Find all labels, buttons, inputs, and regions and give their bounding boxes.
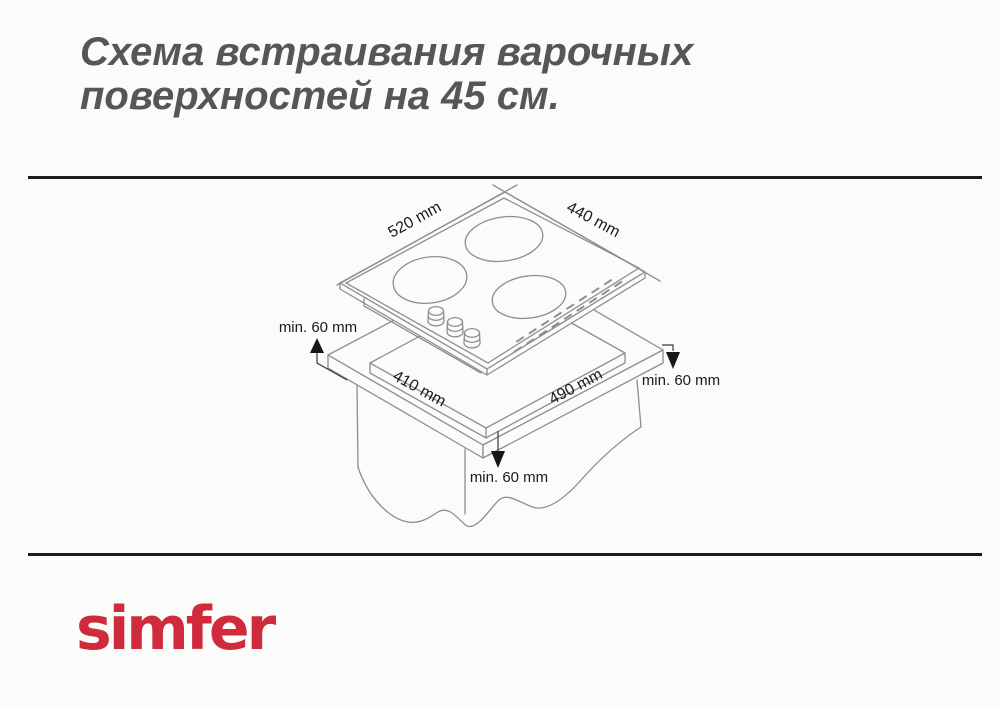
clearance-left-label: min. 60 mm xyxy=(279,319,357,336)
page: Схема встраивания варочных поверхностей … xyxy=(0,0,1000,708)
brand-logo: simfer xyxy=(76,594,273,664)
down-arrow-icon xyxy=(666,352,680,369)
down-arrow-icon xyxy=(491,451,505,468)
bottom-divider xyxy=(28,553,982,556)
clearance-right-label: min. 60 mm xyxy=(642,372,720,389)
up-arrow-icon xyxy=(310,338,324,353)
clearance-bottom-label: min. 60 mm xyxy=(470,469,548,486)
